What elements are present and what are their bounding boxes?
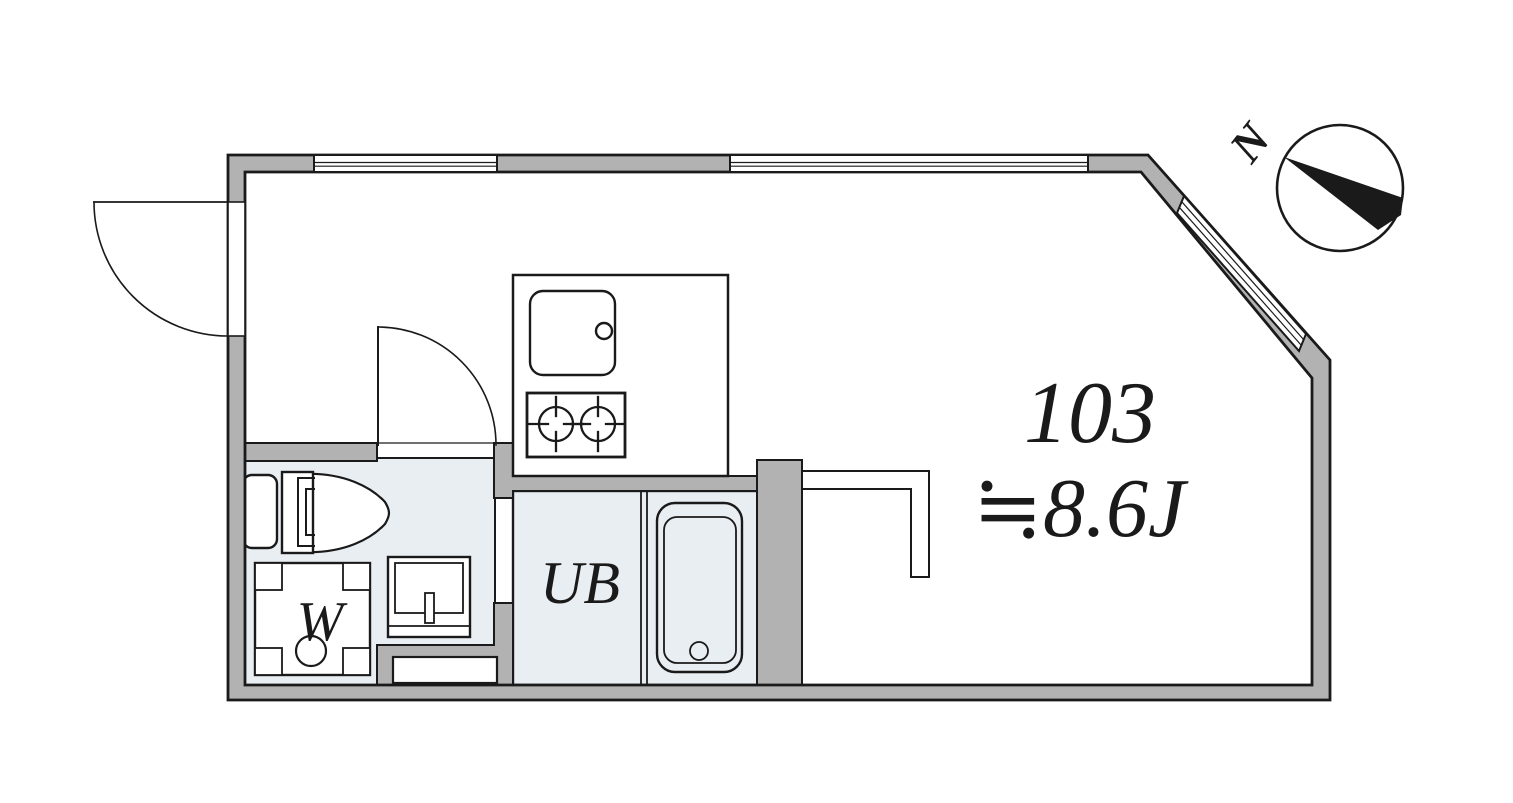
threshold-step bbox=[393, 657, 497, 683]
sink-faucet bbox=[596, 323, 612, 339]
floor-plan-drawing: N 103 ≒8.6J UB W bbox=[0, 0, 1513, 803]
floor-plan-canvas: N 103 ≒8.6J UB W bbox=[0, 0, 1513, 803]
washroom-top-wall bbox=[245, 443, 377, 461]
window-top-left bbox=[314, 155, 497, 172]
compass-north-label: N bbox=[1219, 112, 1281, 172]
bath-side-wall-column bbox=[757, 460, 802, 700]
washroom-door-swing-arc bbox=[378, 327, 496, 445]
wall-openings bbox=[228, 155, 1306, 351]
entrance-door bbox=[94, 202, 228, 336]
unit-number-label: 103 bbox=[1024, 365, 1156, 462]
window-top-right bbox=[730, 155, 1088, 172]
washer-label: W bbox=[297, 591, 348, 653]
compass: N bbox=[1219, 112, 1403, 251]
washroom-door bbox=[378, 327, 496, 445]
kitchen-side-partition bbox=[802, 471, 929, 577]
entrance-door-swing-arc bbox=[94, 202, 228, 336]
area-label: ≒8.6J bbox=[973, 462, 1189, 555]
kitchen-counter bbox=[513, 275, 728, 476]
vanity-sink bbox=[388, 557, 470, 637]
entrance-opening bbox=[228, 202, 245, 336]
vanity-faucet bbox=[425, 593, 434, 623]
unit-bath-label: UB bbox=[540, 550, 620, 616]
toilet-tank bbox=[243, 475, 277, 548]
